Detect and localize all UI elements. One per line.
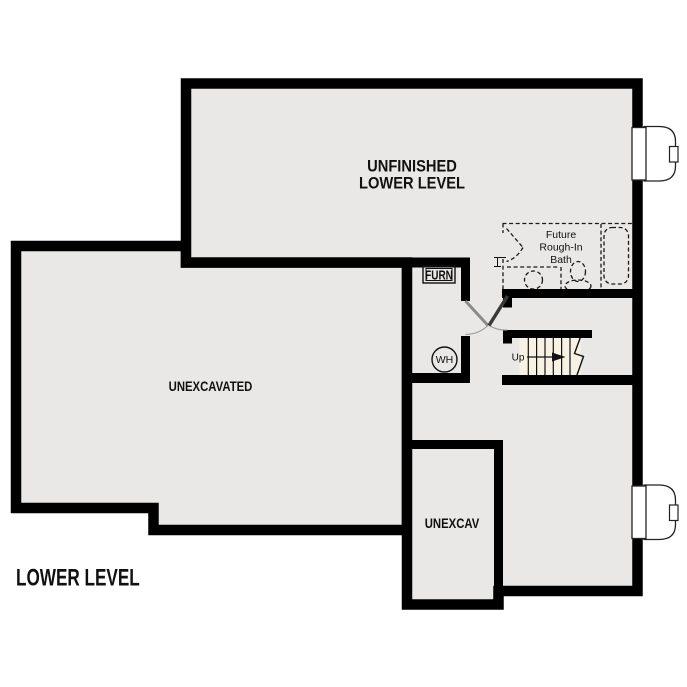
window-well-notch: [670, 147, 679, 163]
future-bath-label-line2: Rough-In: [539, 242, 582, 254]
furnace-label: FURN: [425, 270, 453, 283]
unexcavated-room-label: UNEXCAVATED: [169, 379, 253, 394]
plan-title: LOWER LEVEL: [16, 565, 140, 592]
stairs-up-label: Up: [512, 353, 525, 364]
staircase: Up: [512, 337, 584, 377]
future-bath-label-line1: Future: [546, 229, 577, 241]
floor-plan-canvas: Up: [0, 0, 687, 687]
unfinished-room-label-line2: LOWER LEVEL: [359, 175, 465, 193]
floor-plan-page: Up: [0, 0, 687, 687]
furnace-box: FURN: [423, 266, 455, 283]
egress-window-top: [632, 127, 678, 182]
water-heater-label: WH: [436, 354, 454, 366]
future-bath-label-line3: Bath: [550, 254, 572, 266]
window-frame: [632, 128, 646, 181]
egress-window-bottom: [632, 485, 678, 540]
unfinished-room-label-line1: UNFINISHED: [367, 158, 457, 176]
unexcav-room-label: UNEXCAV: [425, 516, 480, 531]
